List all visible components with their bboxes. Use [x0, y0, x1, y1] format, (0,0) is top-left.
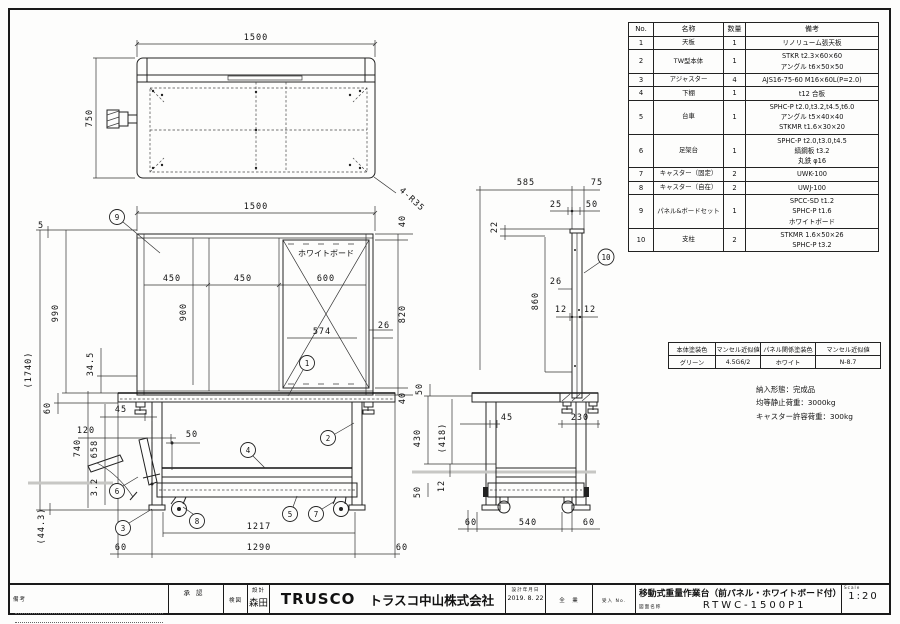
- drawing-title-cell: 移動式重量作業台（前パネル・ホワイトボード付） 図面名称 RTWC-1500P1: [635, 585, 841, 613]
- cell-remark: UWK-100: [746, 168, 879, 182]
- balloon-1: 1: [288, 356, 315, 397]
- color-value-munsell2: N-8.7: [816, 356, 881, 369]
- note-static-load: 均等静止荷重：3000kg: [756, 396, 853, 409]
- svg-text:6: 6: [115, 487, 120, 496]
- table-row: 1天板1リノリューム張天板: [629, 36, 879, 50]
- cell-remark: SPHC-P t2.0,t3.0,t4.5 縞鋼板 t3.2 丸鉄 φ16: [746, 134, 879, 168]
- cell-qty: 1: [724, 50, 746, 73]
- balloon-2: 2: [321, 423, 355, 446]
- company-cell: TRUSCO トラスコ中山株式会社: [269, 585, 505, 613]
- designer-stamp: 森田: [248, 595, 269, 609]
- cell-remark: AJS16-75-60 M16×60L(P=2.0): [746, 73, 879, 87]
- table-row: 9パネル&ボードセット1SPCC-SD t1.2 SPHC-P t1.6 ホワイ…: [629, 195, 879, 229]
- cell-qty: 1: [724, 134, 746, 168]
- check-label: 検図: [229, 598, 242, 604]
- dim-120: 120: [77, 426, 95, 436]
- trusco-logo: TRUSCO: [281, 590, 356, 608]
- whiteboard-label: ホワイトボード: [298, 249, 354, 258]
- department-cell: 全 業: [545, 585, 592, 613]
- caster-fixed: [333, 497, 349, 517]
- balloon-4: 4: [241, 443, 266, 469]
- dim-board-gap-26: 26: [378, 321, 390, 331]
- balloon-7: 7: [309, 501, 336, 522]
- dim-658: 658: [90, 440, 100, 458]
- drawing-title: 移動式重量作業台（前パネル・ホワイトボード付）: [639, 586, 838, 599]
- color-header-panel: パネル関係塗装色: [761, 343, 816, 356]
- remarks-label: 備考: [13, 597, 26, 603]
- table-row: 3アジャスター4AJS16-75-60 M16×60L(P=2.0): [629, 73, 879, 87]
- table-row: 7キャスター（固定）2UWK-100: [629, 168, 879, 182]
- front-view: 1500 450 450 600 900: [24, 202, 413, 558]
- color-header-munsell1: マンセル近似値: [716, 343, 761, 356]
- dim-total-1740: (1740): [24, 352, 34, 389]
- cell-no: 5: [629, 100, 654, 134]
- dim-50w: 50: [586, 200, 598, 210]
- col-no: No.: [629, 23, 654, 37]
- dim-75: 75: [591, 178, 603, 188]
- dim-418: (418): [438, 423, 448, 454]
- cell-remark: STKR t2.3×60×60 アングル t6×50×50: [746, 50, 879, 73]
- adjuster-left: [135, 402, 146, 414]
- drawing-number-label: 図面名称: [639, 604, 661, 610]
- cell-name: アジャスター: [654, 73, 724, 87]
- table-row: 5台車1SPHC-P t2.0,t3.2,t4.5,t6.0 アングル t5×4…: [629, 100, 879, 134]
- svg-text:10: 10: [601, 253, 611, 262]
- table-row: 6足架台1SPHC-P t2.0,t3.0,t4.5 縞鋼板 t3.2 丸鉄 φ…: [629, 134, 879, 168]
- parts-table: No. 名称 数量 備考 1天板1リノリューム張天板 2TW型本体1STKR t…: [628, 22, 879, 252]
- cell-name: 下棚: [654, 87, 724, 101]
- cell-name: パネル&ボードセット: [654, 195, 724, 229]
- dim-230: 230: [571, 413, 589, 423]
- svg-text:9: 9: [115, 213, 120, 222]
- cell-name: 支柱: [654, 228, 724, 251]
- cell-remark: SPCC-SD t1.2 SPHC-P t1.6 ホワイトボード: [746, 195, 879, 229]
- note-delivery-form: 納入形態：完成品: [756, 383, 853, 396]
- dim-60-right: 60: [396, 543, 408, 553]
- dim-26: 26: [550, 277, 562, 287]
- title-block: 備考 承認 検図 設計 森田 TRUSCO トラスコ中山株式会社 設計年月日 2…: [8, 583, 891, 615]
- dim-740: 740: [73, 439, 83, 457]
- dim-12a: 12: [555, 305, 567, 315]
- balloon-10: 10: [584, 249, 614, 273]
- design-date-value: 2019. 8. 22: [506, 595, 545, 602]
- cell-no: 7: [629, 168, 654, 182]
- svg-text:5: 5: [288, 510, 293, 519]
- dim-corner-radius: 4-R35: [397, 186, 426, 214]
- cell-name: キャスター（自在）: [654, 181, 724, 195]
- remarks-line-2: [15, 614, 163, 623]
- dim-top-depth: 750: [85, 109, 95, 127]
- svg-text:7: 7: [314, 510, 319, 519]
- cell-remark: t12 合板: [746, 87, 879, 101]
- svg-text:1: 1: [305, 359, 310, 368]
- dim-540: 540: [519, 518, 537, 528]
- cell-name: TW型本体: [654, 50, 724, 73]
- dim-585: 585: [517, 178, 535, 188]
- svg-text:8: 8: [195, 517, 200, 526]
- dim-panel-600: 600: [317, 274, 335, 284]
- table-row: 2TW型本体1STKR t2.3×60×60 アングル t6×50×50: [629, 50, 879, 73]
- top-view: 1500 750: [85, 33, 426, 214]
- design-date-label: 設計年月日: [506, 587, 545, 593]
- dim-60-side-left: 60: [465, 518, 477, 528]
- cell-qty: 4: [724, 73, 746, 87]
- approval-cell: 承認: [168, 585, 223, 613]
- svg-text:4: 4: [246, 446, 251, 455]
- dim-25: 25: [550, 200, 562, 210]
- parts-header-row: No. 名称 数量 備考: [629, 23, 879, 37]
- dim-top-width: 1500: [244, 33, 268, 43]
- dim-45: 45: [115, 405, 127, 415]
- cell-no: 3: [629, 73, 654, 87]
- dim-860: 860: [531, 292, 541, 310]
- design-date-cell: 設計年月日 2019. 8. 22: [505, 585, 545, 613]
- color-value-body: グリーン: [669, 356, 716, 369]
- col-remark: 備考: [746, 23, 879, 37]
- side-adjuster-b: [588, 402, 598, 413]
- dim-60-left: 60: [115, 543, 127, 553]
- caster-swivel: [171, 497, 187, 517]
- remarks-cell: 備考: [10, 585, 168, 613]
- cell-qty: 1: [724, 195, 746, 229]
- dim-board-574: 574: [313, 327, 331, 337]
- adjuster-right: [363, 402, 374, 414]
- scale-label: Scale: [844, 585, 883, 590]
- dim-60-apron: 60: [43, 402, 53, 414]
- dim-1290: 1290: [247, 543, 271, 553]
- cell-qty: 1: [724, 36, 746, 50]
- svg-text:2: 2: [326, 434, 331, 443]
- side-view: 585 75 25 50 22 860 26: [412, 178, 614, 532]
- drawing-number: RTWC-1500P1: [671, 600, 838, 611]
- dim-panel-450b: 450: [234, 274, 252, 284]
- dim-frame-40-bottom: 40: [398, 392, 408, 404]
- side-adjuster-a: [562, 402, 572, 413]
- dim-22: 22: [490, 221, 500, 233]
- whiteboard: ホワイトボード: [283, 240, 369, 388]
- table-row: 4下棚1t12 合板: [629, 87, 879, 101]
- dim-panel-450a: 450: [163, 274, 181, 284]
- approval-label: 承認: [184, 589, 209, 597]
- col-name: 名称: [654, 23, 724, 37]
- dim-front-width: 1500: [244, 202, 268, 212]
- col-qty: 数量: [724, 23, 746, 37]
- dim-g50: 50: [415, 383, 425, 395]
- handle: [107, 110, 137, 128]
- design-cell: 設計 森田: [247, 585, 269, 613]
- dim-panel-900: 900: [179, 303, 189, 321]
- cell-remark: リノリューム張天板: [746, 36, 879, 50]
- cell-no: 8: [629, 181, 654, 195]
- cell-no: 9: [629, 195, 654, 229]
- color-header-munsell2: マンセル近似値: [816, 343, 881, 356]
- cell-remark: STKMR 1.6×50×26 SPHC-P t3.2: [746, 228, 879, 251]
- color-header-body: 本体塗装色: [669, 343, 716, 356]
- table-row: 8キャスター（自在）2UWJ-100: [629, 181, 879, 195]
- cell-no: 6: [629, 134, 654, 168]
- svg-text:3: 3: [121, 524, 126, 533]
- cell-qty: 2: [724, 181, 746, 195]
- cell-no: 2: [629, 50, 654, 73]
- dim-frame-40-top: 40: [398, 215, 408, 227]
- cell-no: 1: [629, 36, 654, 50]
- remarks-line-1: [15, 605, 163, 614]
- note-caster-load: キャスター許容荷重：300kg: [756, 410, 853, 423]
- dim-60-side-right: 60: [583, 518, 595, 528]
- balloon-9: 9: [110, 210, 161, 254]
- scale-value: 1:20: [844, 591, 883, 602]
- design-label: 設計: [248, 586, 269, 594]
- cell-no: 10: [629, 228, 654, 251]
- dim-990: 990: [51, 304, 61, 322]
- cell-name: キャスター（固定）: [654, 168, 724, 182]
- balloon-3: 3: [116, 509, 153, 536]
- cell-name: 台車: [654, 100, 724, 134]
- scale-cell: Scale 1:20: [841, 585, 885, 613]
- dim-3-2: 3.2: [90, 478, 100, 496]
- cell-name: 足架台: [654, 134, 724, 168]
- cell-qty: 1: [724, 87, 746, 101]
- dim-b50: 50: [413, 486, 423, 498]
- balloon-5: 5: [283, 496, 298, 522]
- delivery-notes: 納入形態：完成品 均等静止荷重：3000kg キャスター許容荷重：300kg: [756, 383, 853, 423]
- dim-34-5: 34.5: [86, 352, 96, 376]
- cell-remark: UWJ-100: [746, 181, 879, 195]
- cell-no: 4: [629, 87, 654, 101]
- dim-50: 50: [186, 430, 198, 440]
- cell-qty: 2: [724, 228, 746, 251]
- dim-12b: 12: [584, 305, 596, 315]
- receipt-label: 受入 No.: [602, 599, 626, 604]
- dim-45-side: 45: [501, 413, 513, 423]
- cell-qty: 1: [724, 100, 746, 134]
- dim-offset-5: 5: [38, 221, 44, 231]
- dim-44-3: (44.3): [37, 508, 47, 545]
- color-value-munsell1: 4.5G6/2: [716, 356, 761, 369]
- receipt-cell: 受入 No.: [592, 585, 635, 613]
- dim-s12: 12: [437, 480, 447, 492]
- dim-430: 430: [413, 429, 423, 447]
- cell-name: 天板: [654, 36, 724, 50]
- color-value-panel: ホワイト: [761, 356, 816, 369]
- dim-panel-820: 820: [398, 305, 408, 323]
- department-label: 全 業: [559, 598, 579, 604]
- drawing-sheet: 1500 750: [0, 0, 900, 624]
- company-name: トラスコ中山株式会社: [369, 590, 494, 609]
- cell-qty: 2: [724, 168, 746, 182]
- paint-color-table: 本体塗装色 マンセル近似値 パネル関係塗装色 マンセル近似値 グリーン 4.5G…: [668, 342, 881, 369]
- check-cell: 検図: [223, 585, 247, 613]
- table-row: 10支柱2STKMR 1.6×50×26 SPHC-P t3.2: [629, 228, 879, 251]
- dim-1217: 1217: [247, 522, 271, 532]
- cell-remark: SPHC-P t2.0,t3.2,t4.5,t6.0 アングル t5×40×40…: [746, 100, 879, 134]
